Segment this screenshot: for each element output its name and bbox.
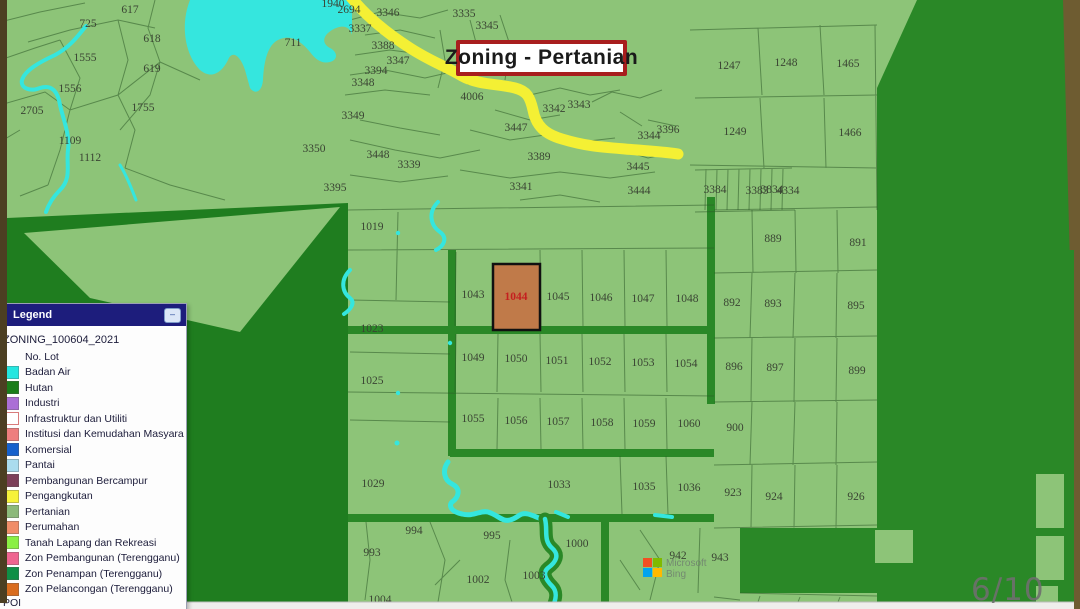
lot-label: 3395 [324,182,347,194]
lot-label: 711 [285,37,302,49]
legend-item-label: Komersial [25,444,72,456]
slide-photo: 6177256181555619155627051755110911127113… [0,0,1080,609]
legend-item-label: Institusi dan Kemudahan Masyara [25,428,184,440]
lot-label: 3448 [367,149,390,161]
legend-swatch [5,412,19,425]
legend-item: Pembangunan Bercampur [2,473,186,489]
ms-logo-green [653,558,662,567]
legend-item: Pertanian [2,504,186,520]
legend-items: No. LotBadan AirHutanIndustriInfrastrukt… [2,349,186,597]
lot-label: 1109 [59,135,82,147]
hutan-block-bottom [740,528,877,593]
legend-swatch [5,474,19,487]
lot-label: 3341 [510,181,533,193]
legend-item: Pengangkutan [2,489,186,505]
legend-item: Institusi dan Kemudahan Masyara [2,427,186,443]
lot-label: 924 [765,491,783,503]
ms-logo-red [643,558,652,567]
legend-header: Legend – [0,304,186,328]
lot-label: 896 [725,361,743,373]
legend-swatch [5,366,19,379]
lot-label: 3388 [372,40,395,52]
lot-label: 3344 [638,130,661,142]
lot-label: 1003 [523,570,546,582]
lot-label: 619 [143,63,161,75]
legend-swatch [5,505,19,518]
lot-label: 1556 [59,83,82,95]
lot-label: 1248 [775,57,798,69]
legend-item-label: Perumahan [25,521,79,533]
lot-label: 1046 [590,292,613,304]
legend-item: Pantai [2,458,186,474]
lot-label: 617 [121,4,139,16]
pertanian-cell [875,530,913,563]
lot-label: 3447 [505,122,528,134]
legend-swatch [5,381,19,394]
lot-label: 1060 [678,418,701,430]
lot-label: 900 [726,422,744,434]
map-title-box: Zoning - Pertanian [456,40,627,76]
lot-label: 4334 [777,185,800,197]
legend-item-label: Tanah Lapang dan Rekreasi [25,537,156,549]
lot-label: 1054 [675,358,698,370]
map-title: Zoning - Pertanian [445,46,638,70]
legend-panel[interactable]: Legend – ZONING_100604_2021 No. LotBadan… [0,303,187,609]
legend-swatch [5,397,19,410]
lot-label: 926 [847,491,865,503]
lot-label: 3339 [398,159,421,171]
legend-swatch [5,459,19,472]
lot-label: 993 [363,547,381,559]
legend-item-label: Zon Pelancongan (Terengganu) [25,583,173,595]
legend-swatch [5,583,19,596]
lot-label: 1036 [678,482,701,494]
legend-item-label: Zon Penampan (Terengganu) [25,568,162,580]
lot-label: 3337 [349,23,372,35]
lot-label: 1555 [74,52,97,64]
lot-label: 4006 [461,91,484,103]
legend-minimize-button[interactable]: – [164,308,181,323]
lot-label: 1053 [632,357,655,369]
lot-label: 1051 [546,355,569,367]
lot-label: 1466 [839,127,862,139]
legend-item-label: Hutan [25,382,53,394]
legend-item: Zon Pelancongan (Terengganu) [2,582,186,598]
lot-label: 1465 [837,58,860,70]
legend-item: Infrastruktur dan Utiliti [2,411,186,427]
lot-label: 3349 [342,110,365,122]
lot-label: 725 [79,18,97,30]
lot-label: 1058 [591,417,614,429]
lot-label: 1025 [361,375,384,387]
lot-label: 1043 [462,289,485,301]
legend-swatch [5,536,19,549]
lot-label: 1056 [505,415,528,427]
lot-label: 1023 [361,323,384,335]
legend-layer-name: ZONING_100604_2021 [2,332,186,349]
lot-label: 1247 [718,60,741,72]
lot-label: 1048 [676,293,699,305]
lot-label: 897 [766,362,784,374]
lot-label: 1050 [505,353,528,365]
lot-label: 1002 [467,574,490,586]
legend-swatch [5,521,19,534]
ms-logo-yellow [653,568,662,577]
highlighted-lot-label: 1044 [505,291,528,303]
legend-item-label: Pertanian [25,506,70,518]
lot-label: 2705 [21,105,44,117]
legend-footer: POI [2,597,186,609]
legend-item: Komersial [2,442,186,458]
lot-label: 3335 [453,8,476,20]
lot-label: 923 [724,487,742,499]
lot-label: 1029 [362,478,385,490]
legend-item-label: Badan Air [25,366,71,378]
legend-swatch [5,443,19,456]
legend-item-label: Pantai [25,459,55,471]
lot-label: 3394 [365,65,388,77]
page-indicator: 6/10 [971,572,1045,608]
ms-logo-blue [643,568,652,577]
legend-item: Hutan [2,380,186,396]
lot-label: 995 [483,530,501,542]
legend-item: Zon Pembangunan (Terengganu) [2,551,186,567]
legend-swatch [5,552,19,565]
lot-label: 1000 [566,538,589,550]
legend-item-label: Zon Pembangunan (Terengganu) [25,552,180,564]
lot-label: 895 [847,300,865,312]
lot-label: 1019 [361,221,384,233]
legend-item-label: Pengangkutan [25,490,93,502]
attribution-line1: Microsoft [666,558,707,569]
legend-item: Tanah Lapang dan Rekreasi [2,535,186,551]
lot-label: 892 [723,297,741,309]
lot-label: 1059 [633,418,656,430]
legend-item: Industri [2,396,186,412]
lot-label: 3445 [627,161,650,173]
legend-swatch [5,567,19,580]
legend-item-label: Industri [25,397,59,409]
lot-label: 3345 [476,20,499,32]
lot-label: 3346 [377,7,400,19]
lot-label: 3350 [303,143,326,155]
lot-label: 891 [849,237,867,249]
lot-label: 3342 [543,103,566,115]
lot-label: 1033 [548,479,571,491]
legend-item: Badan Air [2,365,186,381]
lot-label: 1045 [547,291,570,303]
photo-edge-left [0,0,7,603]
lot-label: 943 [711,552,729,564]
legend-swatch [5,490,19,503]
lot-label: 3384 [704,184,727,196]
legend-item: Perumahan [2,520,186,536]
lot-label: 3348 [352,77,375,89]
attribution-line2: Bing [666,569,686,580]
lot-label: 1755 [132,102,155,114]
lot-label: 1049 [462,352,485,364]
lot-label: 889 [764,233,782,245]
lot-label: 618 [143,33,161,45]
legend-item: Zon Penampan (Terengganu) [2,566,186,582]
lot-label: 1057 [547,416,570,428]
legend-swatch [5,428,19,441]
legend-item-label: Pembangunan Bercampur [25,475,148,487]
lot-label: 1035 [633,481,656,493]
lot-label: 3343 [568,99,591,111]
photo-edge-right [1062,0,1080,609]
legend-item-label: Infrastruktur dan Utiliti [25,413,127,425]
lot-label: 1055 [462,413,485,425]
lot-label: 3389 [528,151,551,163]
legend-item: No. Lot [2,349,186,365]
lot-label: 3347 [387,55,410,67]
lot-label: 1112 [79,152,101,164]
lot-label: 2694 [338,4,361,16]
lot-label: 994 [405,525,423,537]
lot-label: 1052 [589,356,612,368]
pertanian-edge-cell [1036,474,1064,528]
legend-title: Legend [13,309,52,321]
lot-label: 899 [848,365,866,377]
lot-label: 1047 [632,293,655,305]
lot-label: 1249 [724,126,747,138]
lot-label: 893 [764,298,782,310]
lot-label: 3444 [628,185,651,197]
legend-item-label: No. Lot [25,351,59,363]
